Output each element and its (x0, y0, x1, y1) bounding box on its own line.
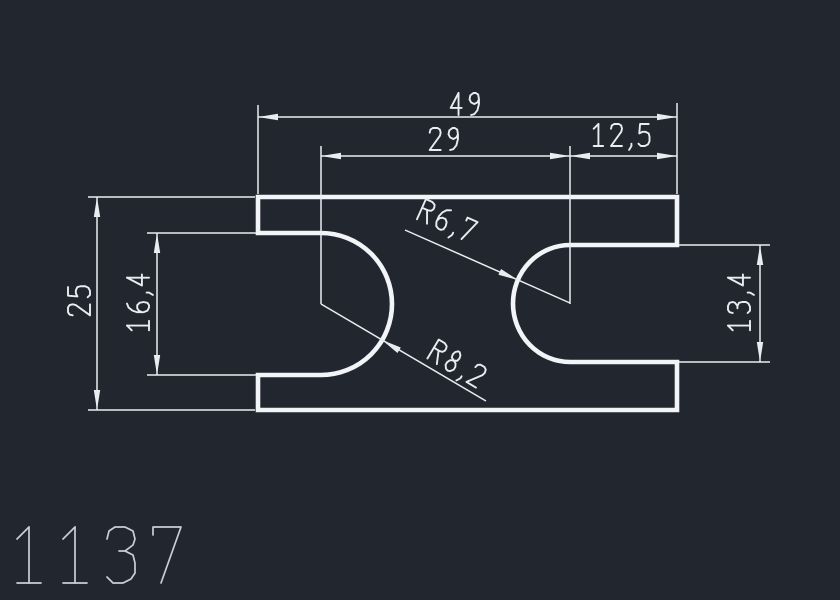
dimension-arrowhead (321, 153, 341, 159)
dimension-arrowhead (498, 269, 518, 280)
dimension-arrowhead (382, 340, 401, 353)
dim-slot-center-distance (321, 128, 570, 304)
dim-left-slot-height (127, 233, 256, 375)
dimension-arrowhead (757, 342, 763, 362)
dimension-arrowhead (570, 153, 590, 159)
dim-overall-height (68, 197, 255, 410)
dimension-arrowhead (94, 390, 100, 410)
dimension-text (594, 124, 650, 150)
dimension-text (68, 286, 90, 315)
cad-viewport (0, 0, 840, 600)
part-number-label (17, 527, 181, 583)
dimension-arrowhead (94, 197, 100, 217)
dim-left-slot-radius (321, 304, 487, 401)
dim-right-slot-height (679, 245, 770, 362)
dimension-arrowhead (657, 153, 677, 159)
dimension-arrowhead (757, 245, 763, 265)
dimension-arrowhead (550, 153, 570, 159)
dimension-text (451, 93, 479, 115)
dimension-text (127, 275, 153, 331)
dimension-text (430, 128, 458, 150)
dimension-arrowhead (258, 114, 278, 120)
dimension-arrowhead (657, 114, 677, 120)
cad-canvas (0, 0, 840, 600)
dimension-line (405, 230, 570, 303)
dim-right-slot-center-offset (570, 124, 677, 159)
dimension-text (728, 275, 754, 331)
dimension-arrowhead (154, 355, 160, 375)
dimension-line (321, 304, 486, 401)
dimension-arrowhead (154, 233, 160, 253)
